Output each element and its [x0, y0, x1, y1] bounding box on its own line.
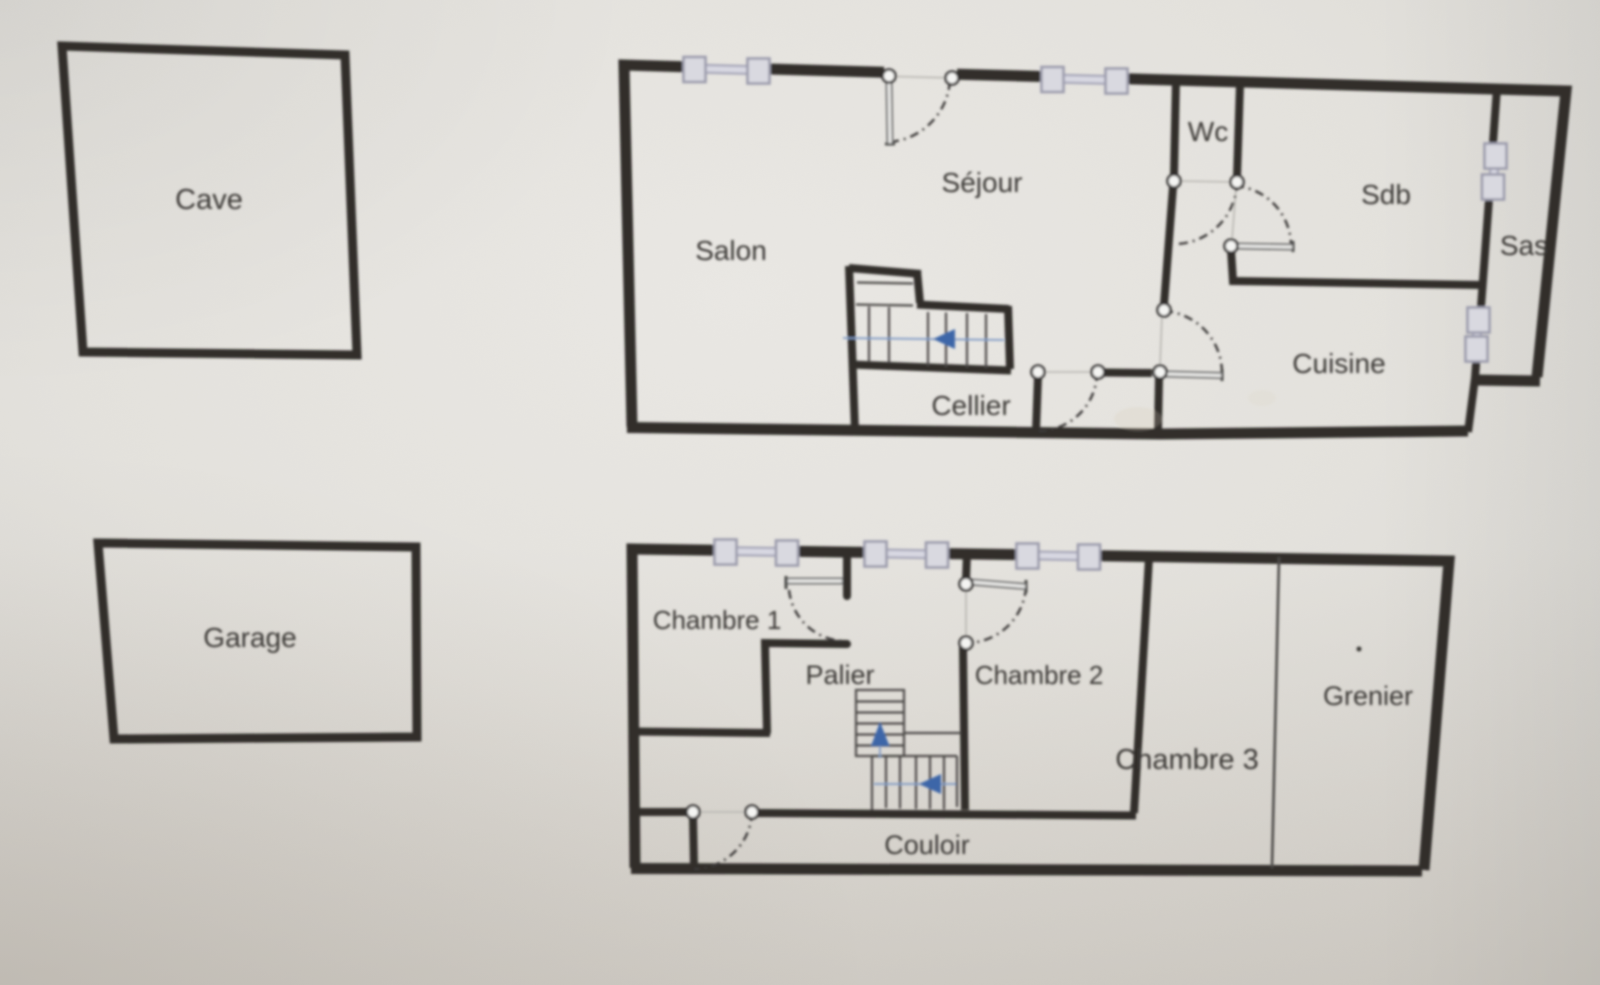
svg-text:Couloir: Couloir — [884, 830, 970, 860]
svg-text:Chambre 3: Chambre 3 — [1115, 744, 1258, 776]
svg-text:Cellier: Cellier — [931, 390, 1010, 421]
svg-text:Cuisine: Cuisine — [1292, 348, 1385, 379]
svg-text:Sas: Sas — [1500, 230, 1548, 261]
svg-text:Grenier: Grenier — [1323, 681, 1413, 711]
svg-text:Chambre 2: Chambre 2 — [975, 660, 1104, 690]
svg-text:Palier: Palier — [805, 660, 874, 690]
svg-text:Sdb: Sdb — [1361, 179, 1411, 210]
svg-text:Salon: Salon — [695, 235, 767, 266]
svg-text:Garage: Garage — [203, 622, 296, 653]
svg-text:Wc: Wc — [1188, 116, 1228, 147]
svg-text:Cave: Cave — [175, 184, 243, 216]
svg-text:Chambre 1: Chambre 1 — [653, 605, 782, 635]
svg-text:Séjour: Séjour — [942, 167, 1023, 198]
